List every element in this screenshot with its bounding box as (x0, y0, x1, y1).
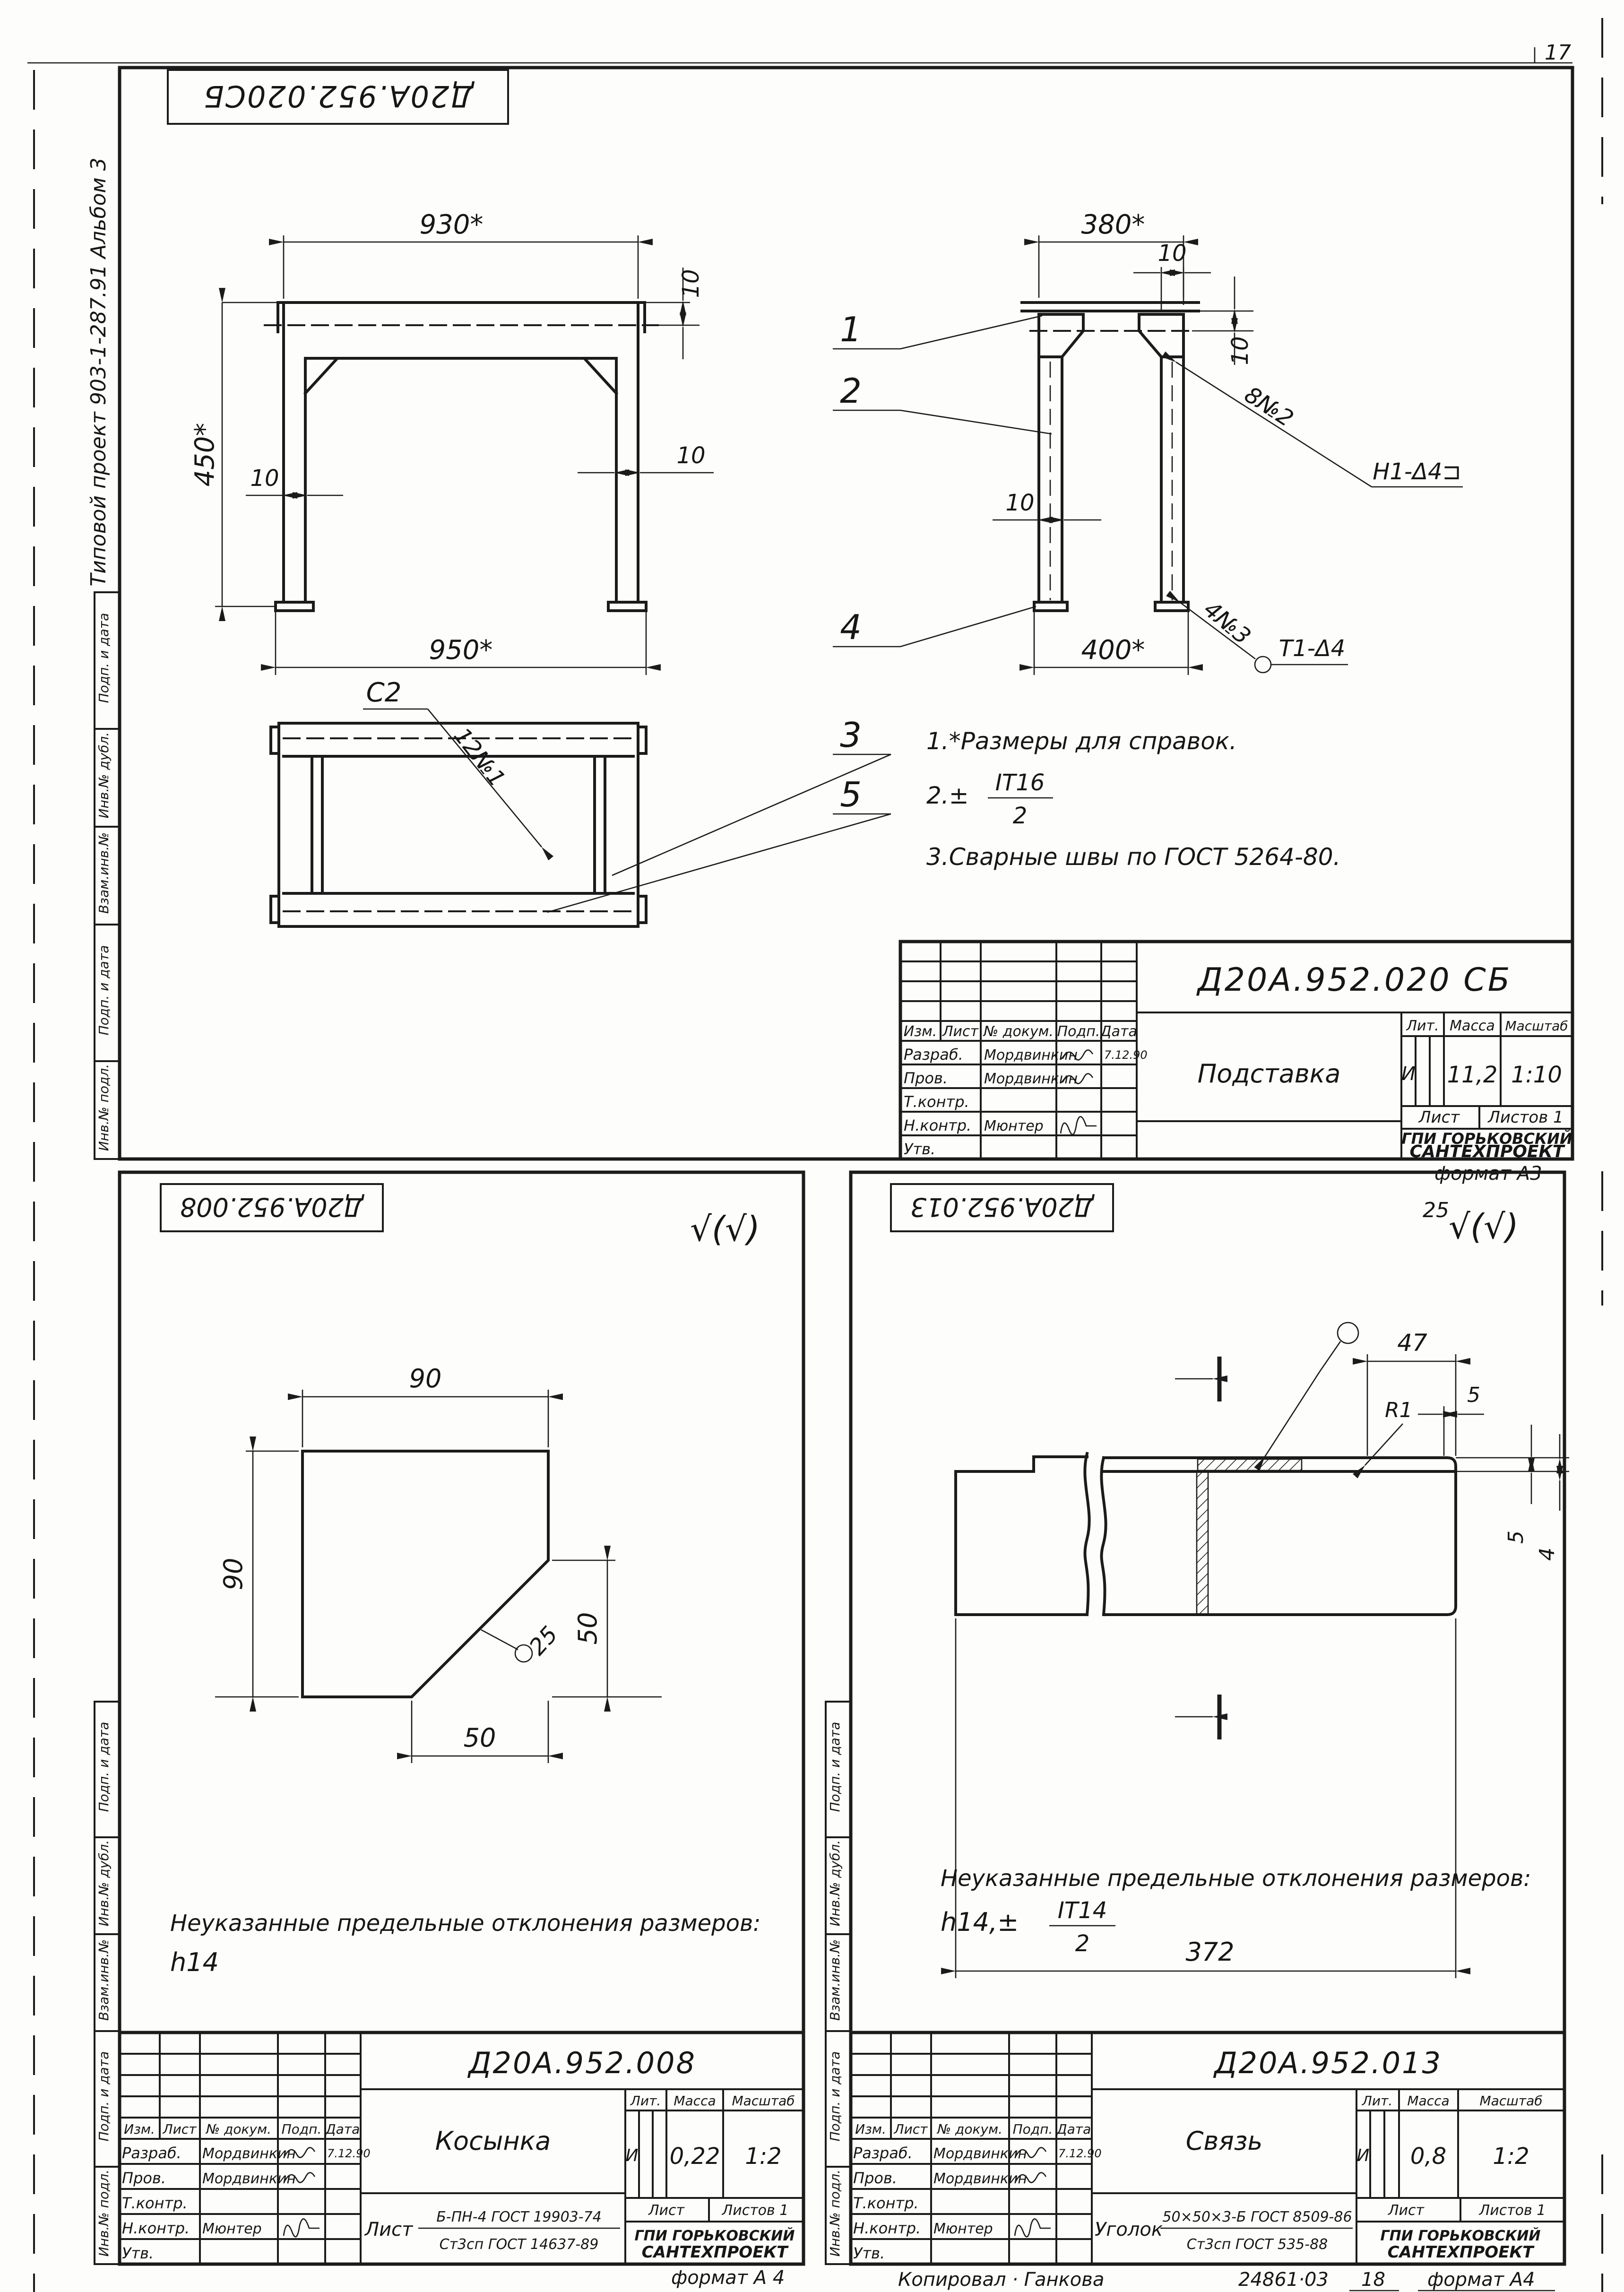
footer-doc-number: 24861·03 (1238, 2269, 1329, 2291)
note-1: 1.*Размеры для справок. (926, 727, 1237, 755)
sheet-left-stamp: Д20А.952.008 (161, 1184, 383, 1231)
col-date: Дата (1099, 1023, 1137, 1040)
callout-4: 4 (840, 607, 862, 647)
dim-4-right: 4 (1535, 1548, 1559, 1561)
margin-cell-label: Инв.№ подл. (827, 2170, 843, 2257)
mass-value: 0,22 (670, 2143, 720, 2170)
footer-right: Копировал · Ганкова 24861·03 18 формат А… (898, 2269, 1555, 2291)
role-utv: Утв. (122, 2244, 154, 2262)
label-mass: Масса (674, 2093, 716, 2109)
copied-by: Копировал · Ганкова (898, 2269, 1104, 2291)
margin-cell-label: Взам.инв.№ (827, 1939, 843, 2021)
label-mass: Масса (1407, 2093, 1449, 2109)
name-ncontrol: Мюнтер (933, 2221, 993, 2237)
signature (1015, 2219, 1051, 2237)
name-designer: Мордвинкин (933, 2145, 1027, 2162)
notes-right: Неуказанные предельные отклонения размер… (941, 1865, 1531, 1957)
dim-90-top: 90 (409, 1364, 442, 1393)
col-sign: Подп. (282, 2121, 322, 2137)
label-sheets: Листов 1 (1487, 1108, 1563, 1127)
scale-value: 1:2 (745, 2143, 781, 2170)
scale-value: 1:10 (1511, 1062, 1562, 1088)
name-ncontrol: Мюнтер (984, 1118, 1044, 1134)
tolerance-numerator: IT14 (1058, 1897, 1107, 1924)
lit-value: И (1401, 1063, 1416, 1085)
col-ndoc: № докум. (983, 1023, 1054, 1040)
org-line2: САНТЕХПРОЕКТ (1409, 1142, 1565, 1161)
label-lit: Лит. (1362, 2093, 1392, 2109)
doc-number: Д20А.952.008 (467, 2046, 696, 2080)
dim-380: 380* (1081, 209, 1145, 240)
notes-left: Неуказанные предельные отклонения размер… (170, 1910, 760, 1977)
role-nkontr: Н.контр. (853, 2219, 921, 2237)
col-izm: Изм. (124, 2121, 155, 2137)
role-nkontr: Н.контр. (904, 1116, 971, 1134)
margin-cell-label: Инв.№ подл. (96, 1064, 112, 1151)
label-sheets: Листов 1 (1479, 2202, 1546, 2219)
part-title: Косынка (435, 2126, 551, 2156)
dim-47: 47 (1397, 1329, 1427, 1357)
sheet-top-stamp-text: Д20А.952.020СБ (202, 79, 475, 113)
front-view-linework (222, 303, 690, 611)
sheet-right-stamp-text: Д20А.952.013 (910, 1192, 1095, 1222)
lit-value: И (626, 2146, 639, 2165)
label-scale: Масштаб (1479, 2093, 1542, 2109)
label-sheet: Лист (1418, 1108, 1460, 1127)
col-date: Дата (325, 2121, 360, 2137)
role-prov: Пров. (122, 2169, 166, 2187)
role-tkontr: Т.контр. (853, 2194, 919, 2212)
note-3: 3.Сварные швы по ГОСТ 5264-80. (926, 843, 1340, 871)
notes-top: 1.*Размеры для справок. 2.± IT16 2 3.Сва… (926, 727, 1340, 871)
label-lit: Лит. (1406, 1018, 1439, 1034)
tolerance-prefix: h14,± (941, 1907, 1019, 1937)
mass-value: 0,8 (1410, 2143, 1446, 2170)
role-prov: Пров. (904, 1069, 948, 1087)
margin-cell-label: Взам.инв.№ (96, 832, 112, 914)
role-razrab: Разраб. (853, 2144, 913, 2162)
note-2-numerator: IT16 (995, 770, 1045, 796)
dim-10-left-leg: 10 (250, 465, 279, 492)
material-bottom: Ст3сп ГОСТ 535-88 (1187, 2236, 1328, 2253)
weld-size-2: 4№3 (1199, 596, 1256, 650)
part-callouts: 1 2 4 (833, 310, 1052, 647)
gusset-linework (302, 1451, 548, 1697)
dim-10-side-beam: 10 (1227, 336, 1253, 365)
project-label: Типовой проект 903-1-287.91 (86, 264, 111, 586)
material-bottom: Ст3сп ГОСТ 14637-89 (440, 2236, 599, 2253)
surface-treatment-symbol (1265, 1323, 1358, 1457)
margin-cell-label: Подп. и дата (96, 1722, 112, 1812)
dim-5-right: 5 (1504, 1531, 1528, 1544)
col-ndoc: № докум. (936, 2121, 1002, 2137)
margin-block-top: Подп. и дата Инв.№ дубл. Взам.инв.№ Подп… (95, 592, 120, 1159)
signature (284, 2219, 320, 2237)
weld-ref-2: Т1-Δ4 (1279, 635, 1346, 662)
margin-cell-label: Инв.№ дубл. (827, 1840, 843, 1927)
titleblock-top: Изм. Лист № докум. Подп. Дата Разраб. Пр… (900, 942, 1572, 1161)
dim-10-right-leg: 10 (676, 442, 705, 469)
sheet-left-stamp-text: Д20А.952.008 (180, 1192, 364, 1222)
name-checker: Мордвинкин (933, 2171, 1027, 2187)
org-line2: САНТЕХПРОЕКТ (1388, 2243, 1535, 2262)
col-sign: Подп. (1057, 1023, 1100, 1040)
col-sign: Подп. (1013, 2121, 1053, 2137)
binder-marks (27, 19, 1602, 2292)
role-razrab: Разраб. (122, 2144, 181, 2162)
role-tkontr: Т.контр. (122, 2194, 188, 2212)
label-scale: Масштаб (1505, 1018, 1568, 1034)
label-sheet: Лист (648, 2202, 685, 2219)
margin-cell-label: Взам.инв.№ (96, 1939, 112, 2021)
callout-1: 1 (840, 310, 862, 349)
label-mass: Масса (1450, 1018, 1495, 1034)
role-utv: Утв. (853, 2244, 885, 2262)
margin-cell-label: Инв.№ подл. (96, 2170, 112, 2257)
roughness-right: 25 √(√) (1423, 1198, 1519, 1246)
sheet-top-stamp: Д20А.952.020СБ (168, 70, 508, 124)
footer-sheet-number: 18 (1361, 2269, 1385, 2291)
gusset-dimensions: 90 90 50 50 25 (215, 1364, 662, 1763)
date-value: 7.12.90 (327, 2147, 371, 2160)
margin-cell-label: Инв.№ дубл. (96, 732, 112, 819)
col-date: Дата (1056, 2121, 1091, 2137)
col-list: Лист (163, 2121, 197, 2137)
roughness-left: √(√) (690, 1209, 760, 1249)
margin-block-left: Подп. и дата Инв.№ дубл. Взам.инв.№ Подп… (95, 1702, 120, 2264)
callout-2: 2 (840, 371, 862, 411)
col-izm: Изм. (855, 2121, 886, 2137)
col-list: Лист (942, 1023, 979, 1040)
roughness-symbol: √(√) (1449, 1207, 1519, 1246)
dim-372: 372 (1185, 1937, 1234, 1967)
date-value: 7.12.90 (1058, 2147, 1102, 2160)
label-lit: Лит. (630, 2093, 661, 2109)
col-izm: Изм. (904, 1023, 937, 1040)
col-ndoc: № докум. (205, 2121, 271, 2137)
tolerance-note-left: Неуказанные предельные отклонения размер… (170, 1910, 760, 1937)
dim-5-top: 5 (1467, 1383, 1480, 1407)
note-2-denominator: 2 (1013, 803, 1028, 829)
dim-400: 400* (1081, 635, 1145, 666)
page-number: 17 (1545, 41, 1571, 65)
sheet-right-stamp: Д20А.952.013 (891, 1184, 1113, 1231)
name-designer: Мордвинкин (984, 1047, 1078, 1064)
dim-950: 950* (429, 635, 493, 666)
tolerance-note-right: Неуказанные предельные отклонения размер… (941, 1865, 1531, 1892)
role-tkontr: Т.контр. (904, 1093, 969, 1111)
material-top: 50×50×3-Б ГОСТ 8509-86 (1162, 2209, 1352, 2225)
plan-view-linework (271, 723, 646, 926)
lit-value: И (1357, 2146, 1370, 2165)
org-line1: ГПИ ГОРЬКОВСКИЙ (1381, 2227, 1541, 2244)
dim-10-side-leg: 10 (1005, 490, 1034, 516)
tie-linework (956, 1453, 1456, 1615)
format-a4-left: формат А 4 (671, 2267, 785, 2289)
dim-r1: R1 (1385, 1398, 1413, 1422)
margin-cell-label: Подп. и дата (96, 2051, 112, 2142)
doc-number: Д20А.952.013 (1213, 2046, 1442, 2080)
plan-view-callouts: С2 12№1 3 5 (363, 677, 891, 912)
role-razrab: Разраб. (904, 1046, 963, 1064)
margin-cell-label: Подп. и дата (827, 1722, 843, 1812)
scale-value: 1:2 (1493, 2143, 1529, 2170)
material-prefix: Лист (364, 2219, 414, 2240)
dim-50-right: 50 (573, 1612, 603, 1645)
tolerance-value-left: h14 (170, 1947, 219, 1977)
callout-5: 5 (840, 775, 862, 814)
dim-50-bottom: 50 (464, 1723, 496, 1753)
name-checker: Мордвинкин (984, 1071, 1078, 1087)
name-designer: Мордвинкин (202, 2145, 296, 2162)
doc-number: Д20А.952.020 СБ (1196, 961, 1512, 999)
album-label: Альбом 3 (86, 157, 111, 259)
name-ncontrol: Мюнтер (202, 2221, 262, 2237)
format-a4-right: формат А4 (1427, 2269, 1535, 2291)
part-title: Подставка (1198, 1059, 1341, 1089)
margin-cell-label: Подп. и дата (96, 613, 112, 703)
front-view-dimensions: 930* 450* 950* 10 10 10 (190, 209, 714, 675)
date-value: 7.12.90 (1104, 1048, 1148, 1062)
drawing-page: 17 Д20А.952.020СБ Альбом 3 Типовой проек… (0, 0, 1624, 2292)
callout-3: 3 (840, 715, 862, 755)
weld-size-1: 8№2 (1240, 381, 1298, 432)
side-view-linework (1022, 303, 1199, 611)
margin-cell-label: Инв.№ дубл. (96, 1840, 112, 1927)
tolerance-denominator: 2 (1075, 1930, 1090, 1957)
weld-callouts: 8№2 Н1-Δ4⊐ 4№3 Т1-Δ4 (1176, 362, 1463, 673)
col-list: Лист (894, 2121, 928, 2137)
label-sheets: Листов 1 (722, 2202, 789, 2219)
part-title: Связь (1186, 2126, 1263, 2156)
margin-block-right: Подп. и дата Инв.№ дубл. Взам.инв.№ Подп… (826, 1702, 851, 2264)
note-2-prefix: 2.± (926, 782, 969, 809)
margin-cell-label: Подп. и дата (827, 2051, 843, 2142)
org-line2: САНТЕХПРОЕКТ (642, 2243, 789, 2262)
weld-ref-1: Н1-Δ4⊐ (1373, 458, 1461, 485)
material-prefix: Уголок (1095, 2219, 1163, 2240)
role-nkontr: Н.контр. (122, 2219, 190, 2237)
label-scale: Масштаб (732, 2093, 795, 2109)
margin-cell-label: Подп. и дата (96, 945, 112, 1036)
weld-c2: С2 (366, 677, 402, 708)
dim-450: 450* (190, 423, 220, 487)
roughness-value: 25 (1423, 1198, 1449, 1222)
drawing-canvas: 17 Д20А.952.020СБ Альбом 3 Типовой проек… (0, 0, 1624, 2292)
signature (1061, 1116, 1097, 1134)
titleblock-left: Изм. Лист № докум. Подп. Дата Разраб. Пр… (120, 2033, 803, 2264)
role-utv: Утв. (904, 1140, 935, 1158)
dim-10-beam: 10 (678, 269, 704, 298)
label-sheet: Лист (1388, 2202, 1425, 2219)
dim-25-chamfer: 25 (524, 1621, 563, 1661)
mass-value: 11,2 (1447, 1062, 1498, 1088)
dim-90-left: 90 (218, 1558, 248, 1591)
role-prov: Пров. (853, 2169, 897, 2187)
dim-10-top: 10 (1158, 240, 1186, 267)
material-top: Б-ПН-4 ГОСТ 19903-74 (436, 2209, 602, 2225)
titleblock-right: Изм. Лист № докум. Подп. Дата Разраб. Пр… (851, 2033, 1564, 2264)
name-checker: Мордвинкин (202, 2171, 296, 2187)
org-line1: ГПИ ГОРЬКОВСКИЙ (635, 2227, 795, 2244)
dim-930: 930* (420, 209, 484, 240)
